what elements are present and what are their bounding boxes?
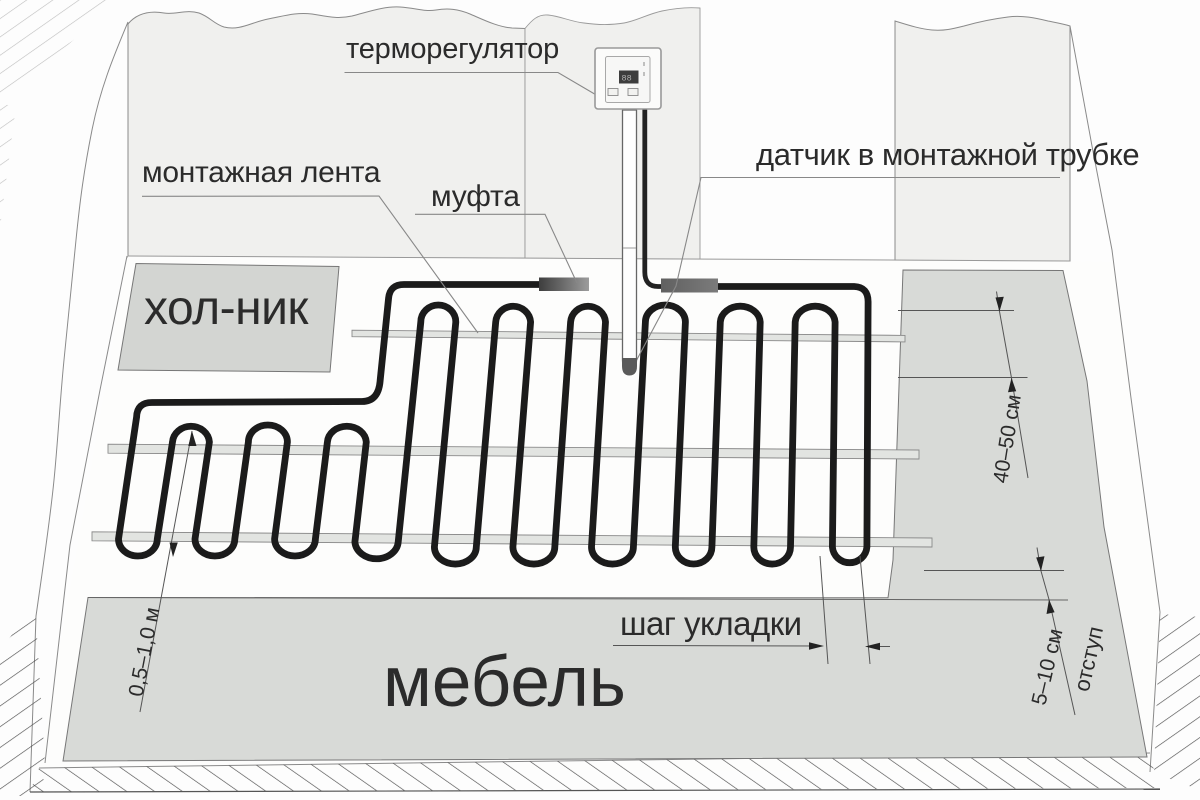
svg-text:88: 88 bbox=[622, 74, 632, 84]
